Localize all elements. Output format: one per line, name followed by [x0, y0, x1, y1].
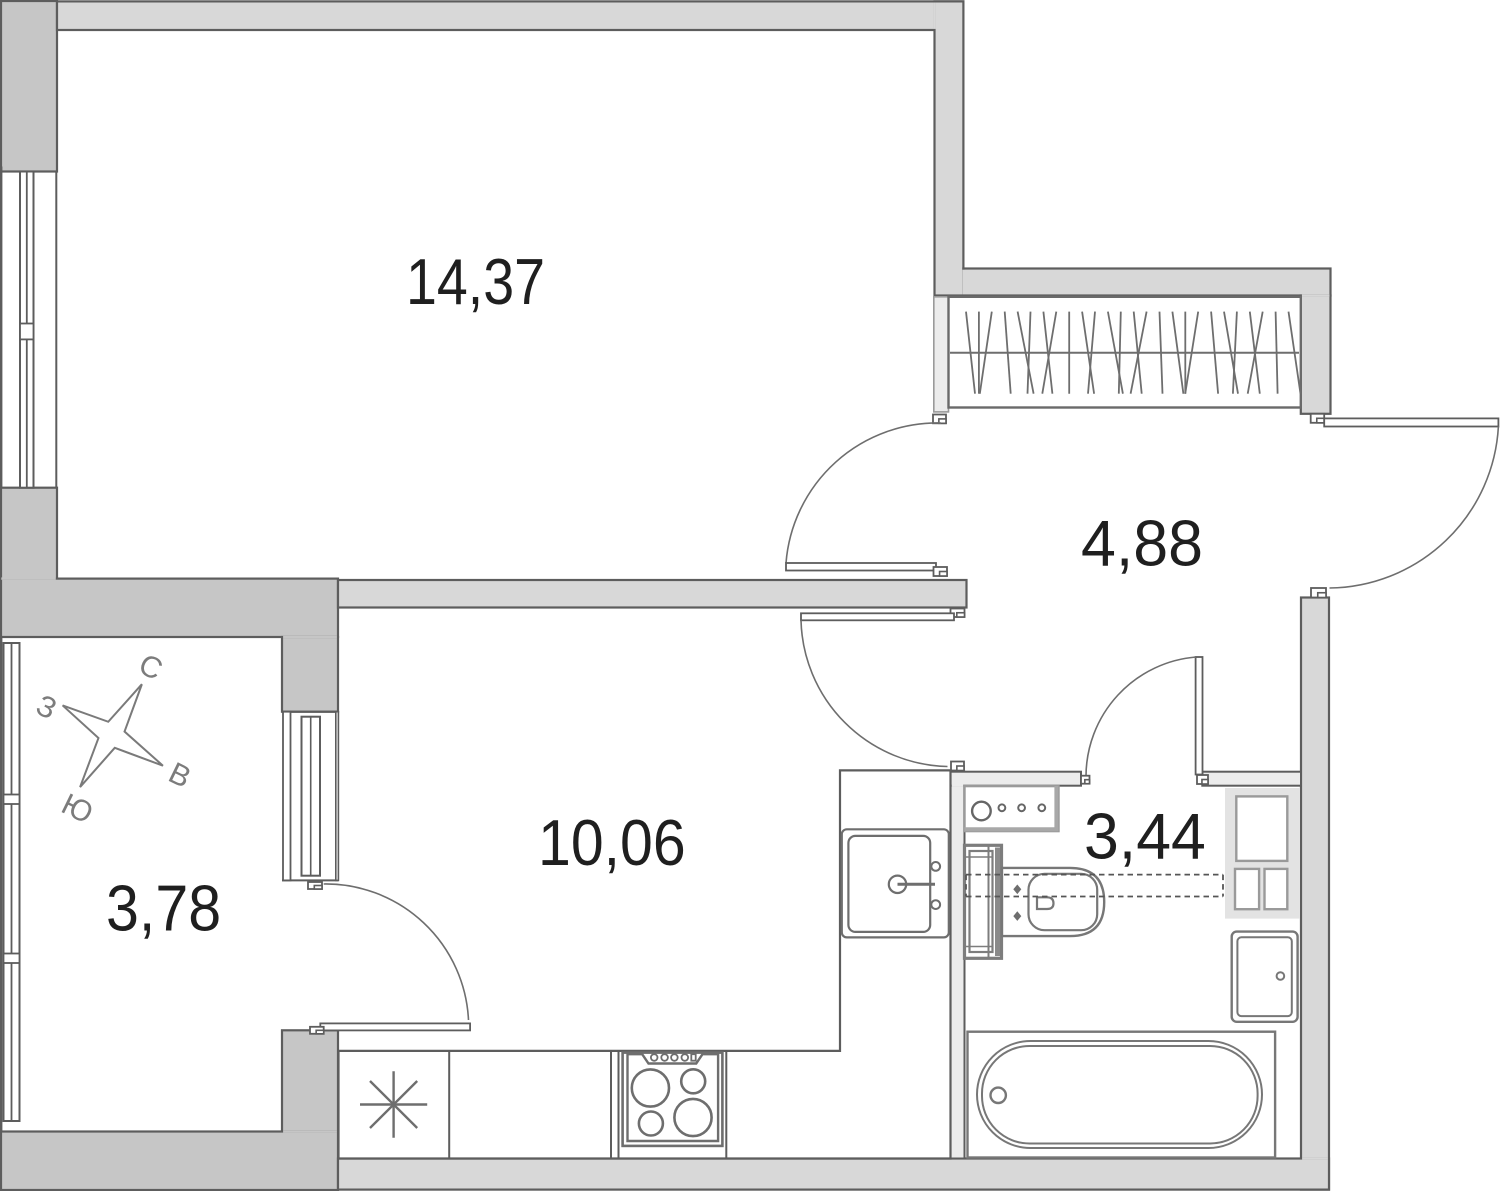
- svg-text:3,78: 3,78: [106, 872, 221, 945]
- svg-text:14,37: 14,37: [406, 245, 545, 318]
- svg-text:3,44: 3,44: [1084, 800, 1206, 873]
- svg-text:10,06: 10,06: [538, 806, 686, 879]
- svg-text:4,88: 4,88: [1081, 506, 1203, 579]
